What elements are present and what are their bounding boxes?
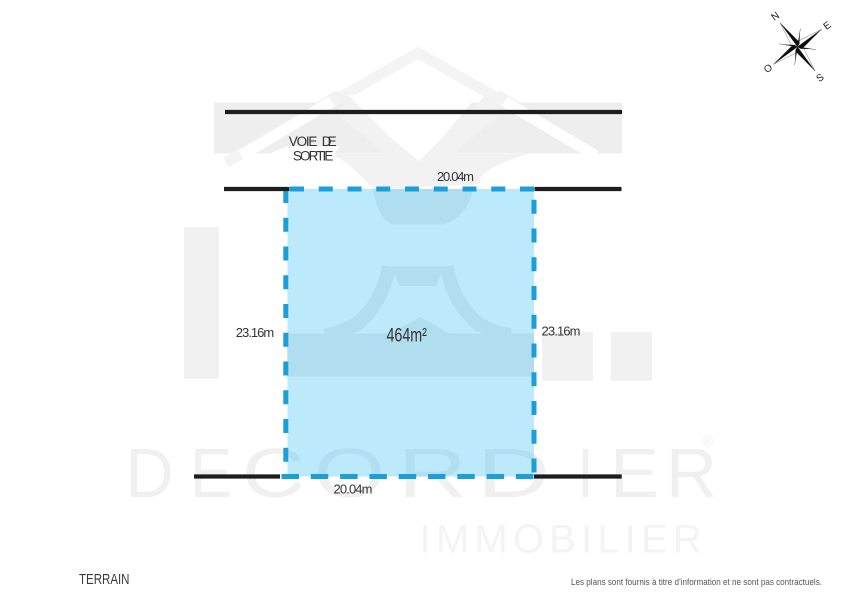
svg-text:IMMOBILIER: IMMOBILIER (420, 518, 708, 562)
svg-text:®: ® (702, 433, 713, 450)
svg-text:23.16m: 23.16m (542, 324, 581, 339)
svg-text:SORTIE: SORTIE (293, 149, 334, 164)
svg-text:464m²: 464m² (386, 326, 427, 347)
svg-text:D: D (126, 434, 174, 512)
svg-text:E: E (822, 20, 834, 33)
svg-text:VOIE: VOIE (289, 134, 318, 149)
svg-text:Les plans sont fournis à titre: Les plans sont fournis à titre d’informa… (571, 577, 822, 587)
svg-text:DE: DE (322, 134, 337, 149)
svg-text:E: E (190, 434, 232, 512)
svg-text:23.16m: 23.16m (236, 325, 275, 340)
svg-text:I: I (577, 434, 594, 512)
svg-text:N: N (770, 10, 782, 23)
svg-text:E: E (610, 434, 659, 512)
svg-text:S: S (814, 72, 826, 85)
svg-text:20.04m: 20.04m (437, 169, 474, 184)
svg-text:TERRAIN: TERRAIN (79, 572, 130, 588)
svg-text:20.04m: 20.04m (334, 482, 373, 497)
